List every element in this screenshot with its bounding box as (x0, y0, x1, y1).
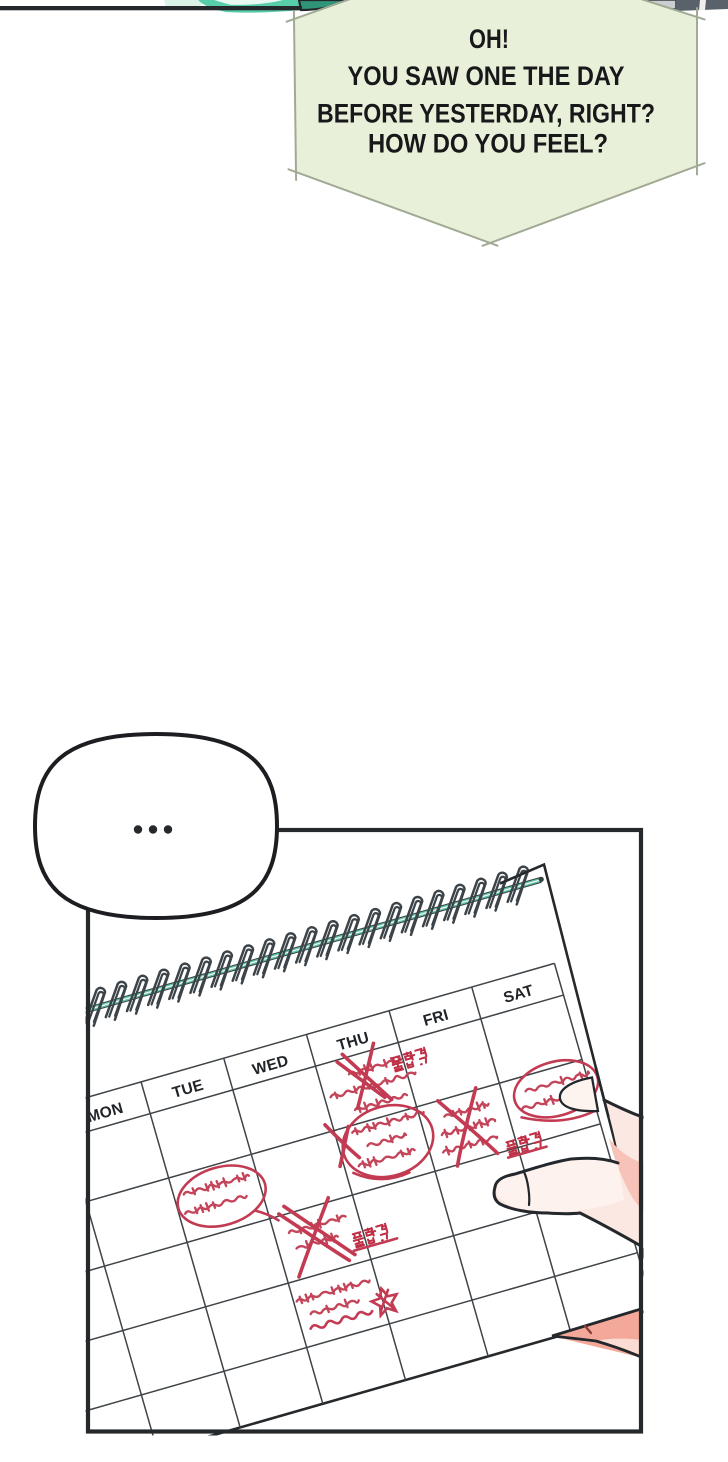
svg-text:HOW DO YOU FEEL?: HOW DO YOU FEEL? (368, 129, 608, 159)
svg-text:OH!: OH! (469, 24, 509, 54)
svg-text:YOU SAW ONE THE DAY: YOU SAW ONE THE DAY (348, 61, 625, 91)
svg-text:BEFORE YESTERDAY, RIGHT?: BEFORE YESTERDAY, RIGHT? (317, 99, 655, 129)
